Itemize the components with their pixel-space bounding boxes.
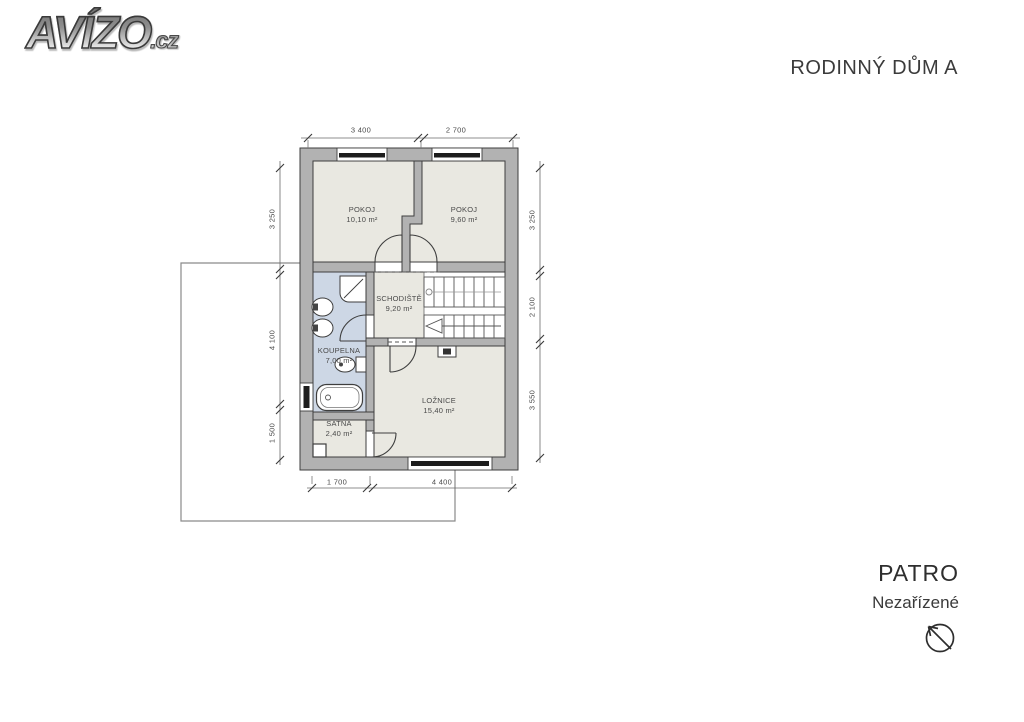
- dim-right-2: 2 100: [528, 297, 537, 317]
- window-glass: [411, 461, 489, 466]
- north-arrow-icon: [924, 622, 956, 654]
- wall-segment: [416, 338, 505, 346]
- wall-segment: [437, 262, 505, 272]
- floor-label: PATRO: [878, 560, 959, 587]
- wall-segment: [366, 272, 374, 315]
- window-glass: [304, 386, 310, 408]
- room-label-koupelna: KOUPELNA 7,00 m²: [318, 346, 360, 366]
- page: AVÍZO.cz RODINNÝ DŮM A: [0, 0, 1024, 722]
- wall-segment: [313, 262, 375, 272]
- room-area: 7,00 m²: [318, 356, 360, 366]
- wall-segment: [366, 338, 388, 346]
- dim-bottom-2: 4 400: [432, 478, 452, 487]
- shaft: [313, 444, 326, 457]
- footer-block: PATRO Nezařízené: [872, 560, 959, 654]
- dim-left-2: 4 100: [268, 330, 277, 350]
- room-name: KOUPELNA: [318, 346, 360, 356]
- room-label-loznice: LOŽNICE 15,40 m²: [422, 396, 456, 416]
- room-name: POKOJ: [346, 205, 377, 215]
- dim-top-1: 3 400: [351, 126, 371, 135]
- dim-left-3: 1 500: [268, 423, 277, 443]
- room-label-pokoj-2: POKOJ 9,60 m²: [451, 205, 478, 225]
- dim-right-3: 3 550: [528, 390, 537, 410]
- room-name: ŠATNA: [326, 419, 353, 429]
- room-area: 9,60 m²: [451, 215, 478, 225]
- furnishing-state-label: Nezařízené: [872, 593, 959, 613]
- sink-tap: [313, 304, 318, 311]
- room-area: 9,20 m²: [376, 304, 422, 314]
- room-label-satna: ŠATNA 2,40 m²: [326, 419, 353, 439]
- room-area: 15,40 m²: [422, 406, 456, 416]
- dim-left-1: 3 250: [268, 209, 277, 229]
- room-label-pokoj-1: POKOJ 10,10 m²: [346, 205, 377, 225]
- room-area: 10,10 m²: [346, 215, 377, 225]
- window-glass: [434, 153, 480, 158]
- dim-bottom-1: 1 700: [327, 478, 347, 487]
- chimney-flue: [443, 349, 451, 355]
- room-name: LOŽNICE: [422, 396, 456, 406]
- bathtub-drain: [326, 395, 331, 400]
- room-area: 2,40 m²: [326, 429, 353, 439]
- bathtub: [317, 385, 363, 411]
- floor-plan-drawing: [0, 0, 1024, 722]
- dim-right-1: 3 250: [528, 210, 537, 230]
- room-name: SCHODIŠTĚ: [376, 294, 422, 304]
- dim-top-2: 2 700: [446, 126, 466, 135]
- window-glass: [339, 153, 385, 158]
- room-label-schodiste: SCHODIŠTĚ 9,20 m²: [376, 294, 422, 314]
- sink-tap: [313, 325, 318, 332]
- room-name: POKOJ: [451, 205, 478, 215]
